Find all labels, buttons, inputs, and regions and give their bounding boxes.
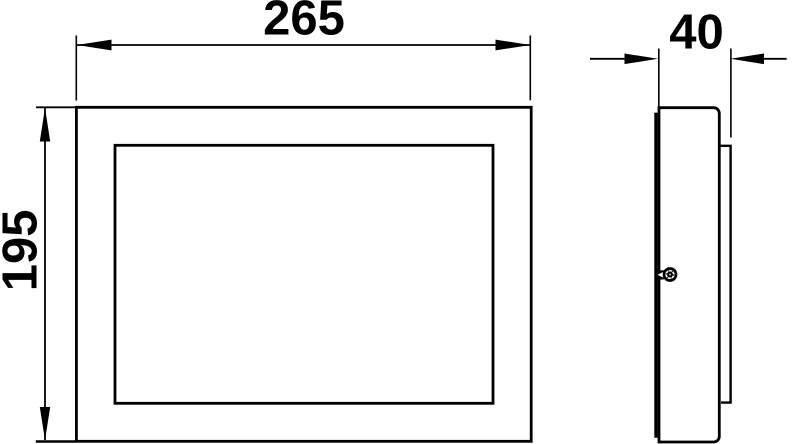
svg-text:40: 40 (669, 6, 724, 60)
svg-text:195: 195 (0, 210, 48, 292)
svg-text:265: 265 (263, 0, 345, 46)
